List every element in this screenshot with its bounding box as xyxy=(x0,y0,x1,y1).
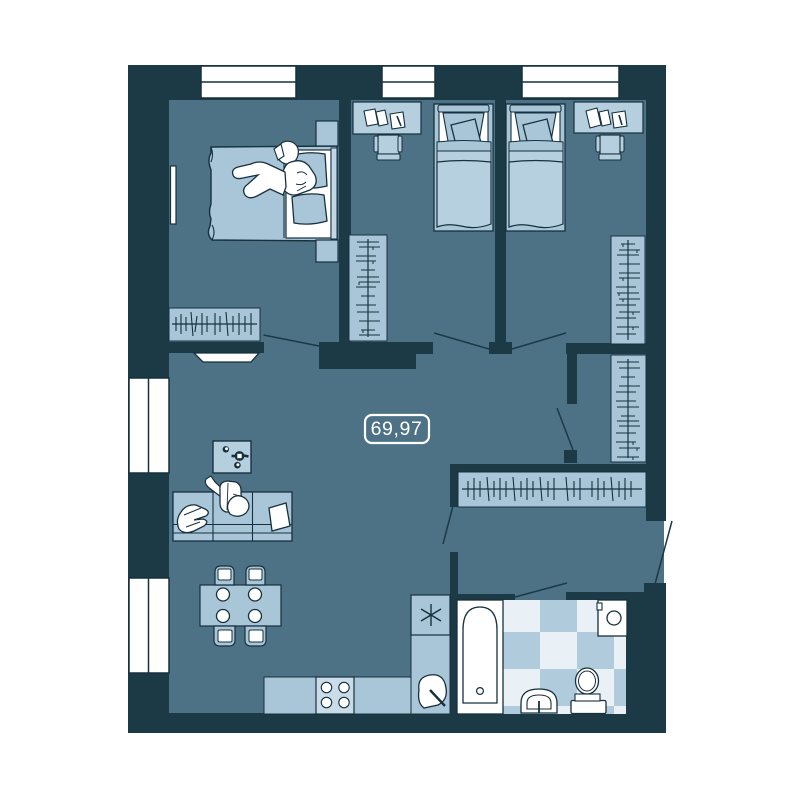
svg-text:69,97: 69,97 xyxy=(371,418,423,440)
